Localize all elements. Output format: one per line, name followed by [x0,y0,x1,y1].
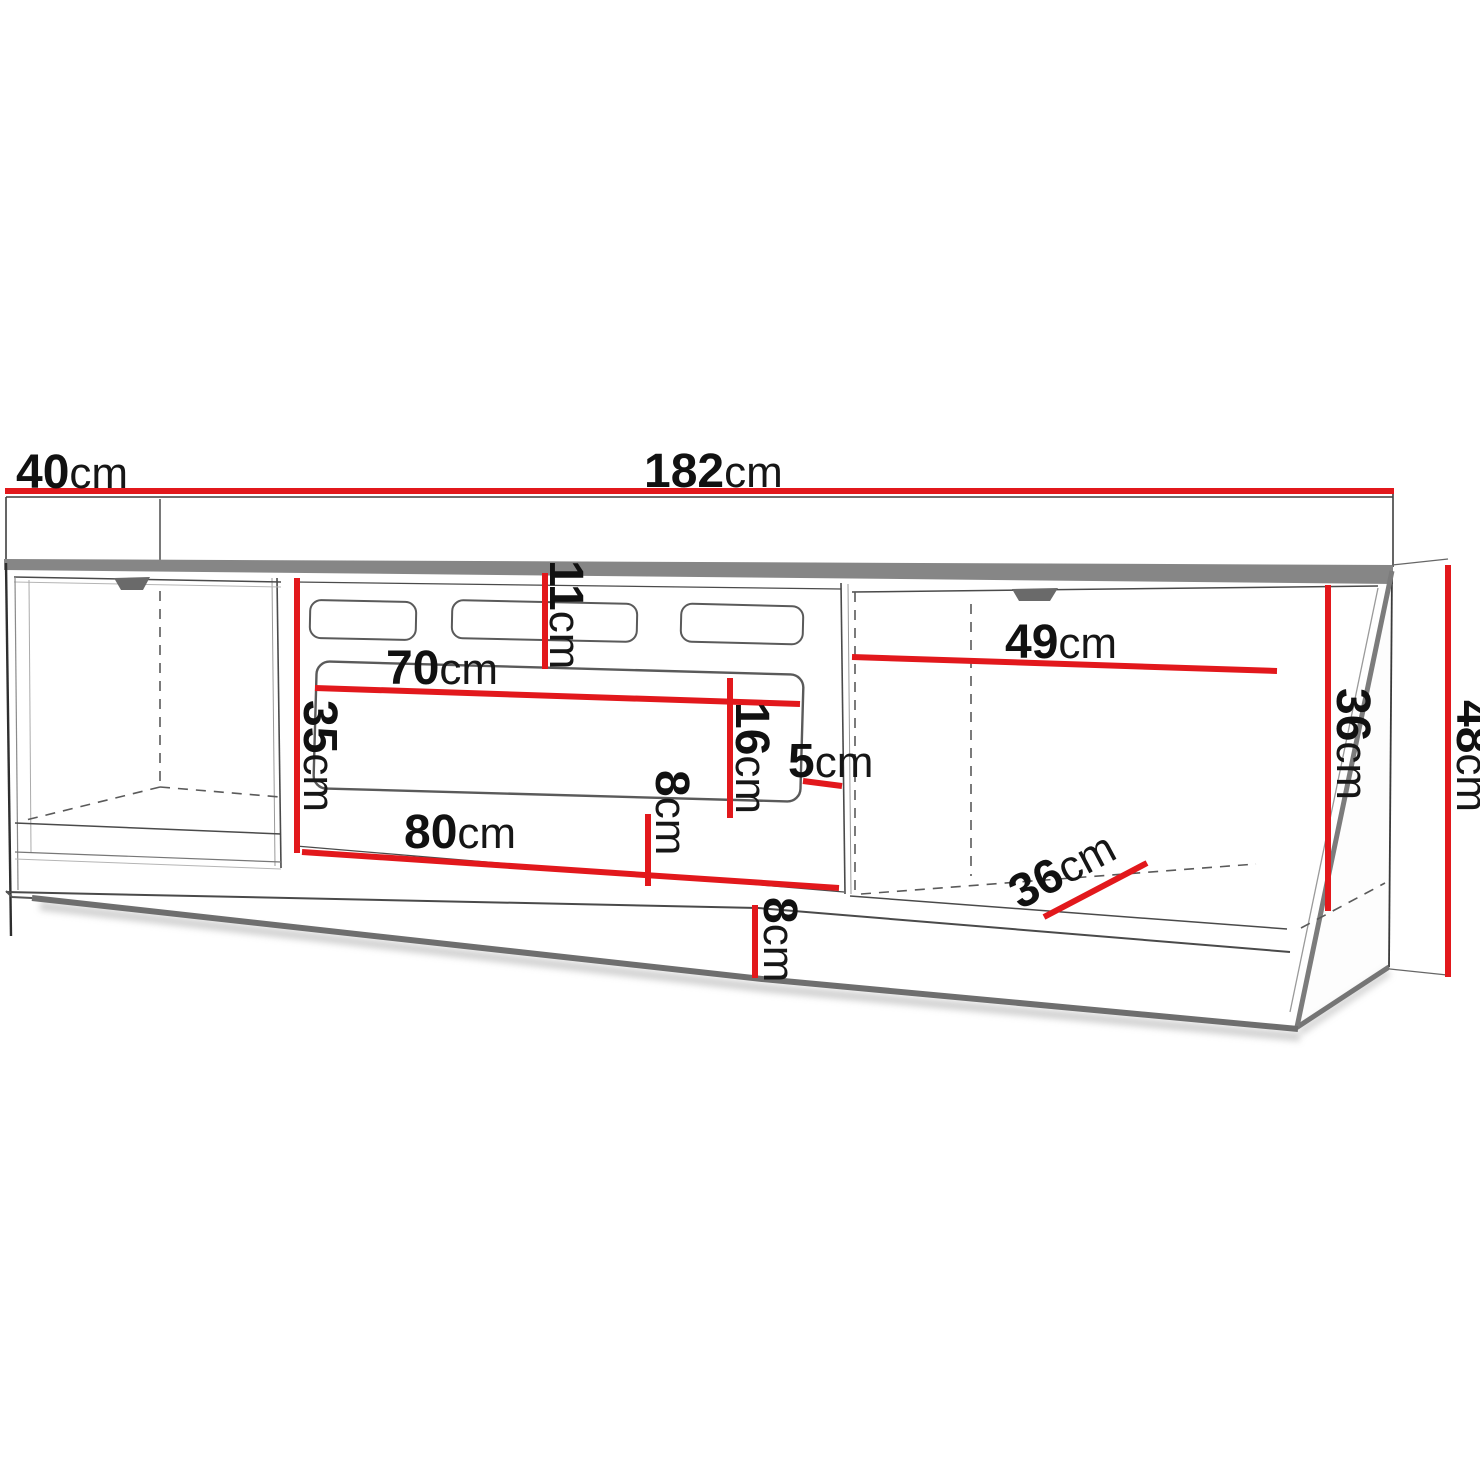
page: 40cm 182cm 11cm 70cm 35cm 16cm 5cm 8cm 8… [0,0,1480,1480]
cabinet-left-edge [6,563,11,936]
divider-left-inner [272,578,275,866]
plinth-bottom-edge [32,898,1298,1029]
left-wall-line2 [29,580,31,852]
dim-label-opening-floor-gap: 8cm [645,770,698,855]
vent-slot-1 [310,600,417,640]
right-side-panel [1290,571,1392,1032]
dim-label-opening-top-width: 70cm [386,642,498,695]
cabinet-top-surface [4,494,1393,584]
dim-line-opening-bottom-width [302,852,839,888]
dim-label-vent-offset: 11cm [539,560,592,669]
dim-label-left-inner-height: 35cm [293,700,346,812]
divider-left [277,578,281,868]
height-extension-top [1392,559,1448,565]
left-floor-dashed-b [160,787,280,797]
dim-label-width-total: 182cm [644,445,783,498]
left-compartment-top-edge2 [14,582,281,587]
extension-lines [1390,559,1448,975]
left-floor-dashed-a [22,787,160,821]
height-extension-bottom [1390,969,1447,975]
right-door-handle [1012,588,1058,601]
left-door-handle [114,577,150,590]
dim-label-right-inner-height: 36cm [1326,688,1379,800]
dim-label-right-opening-width: 49cm [1005,616,1117,669]
left-wall-line [15,577,18,890]
dim-label-opening-height: 16cm [725,702,778,814]
dim-label-depth-top: 40cm [16,446,128,499]
dim-label-side-gap: 5cm [788,735,873,788]
dim-label-opening-bottom-width: 80cm [404,806,516,859]
furniture-dimension-diagram: 40cm 182cm 11cm 70cm 35cm 16cm 5cm 8cm 8… [0,0,1480,1480]
dim-label-total-height: 48cm [1446,700,1480,812]
left-compartment [14,577,281,890]
left-floor-front-edge [15,823,281,834]
right-compartment-top-edge [852,586,1378,592]
vent-slot-3 [681,604,804,645]
top-surface-face [6,497,1393,566]
dim-label-plinth-height: 8cm [753,897,806,982]
